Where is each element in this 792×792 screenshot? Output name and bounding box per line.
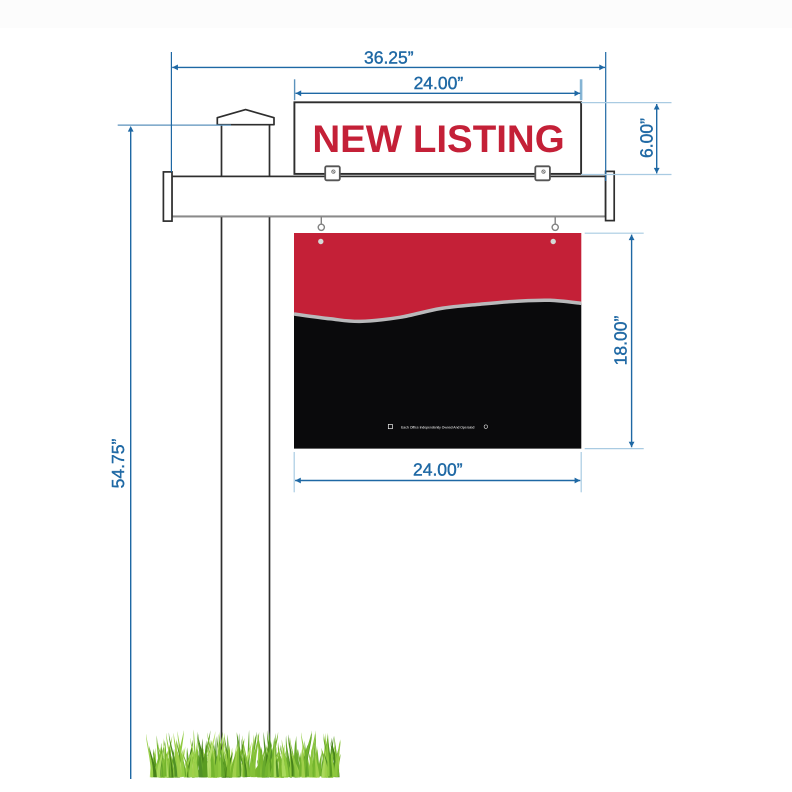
svg-text:Each Office Independently Owne: Each Office Independently Owned And Oper… xyxy=(401,426,474,430)
svg-text:6.00”: 6.00” xyxy=(637,118,657,158)
svg-text:24.00”: 24.00” xyxy=(413,460,463,480)
svg-text:NEW LISTING: NEW LISTING xyxy=(312,118,564,161)
svg-text:54.75”: 54.75” xyxy=(108,439,128,489)
svg-text:36.25”: 36.25” xyxy=(364,48,414,68)
svg-text:18.00”: 18.00” xyxy=(611,316,631,366)
svg-text:24.00”: 24.00” xyxy=(414,73,464,93)
